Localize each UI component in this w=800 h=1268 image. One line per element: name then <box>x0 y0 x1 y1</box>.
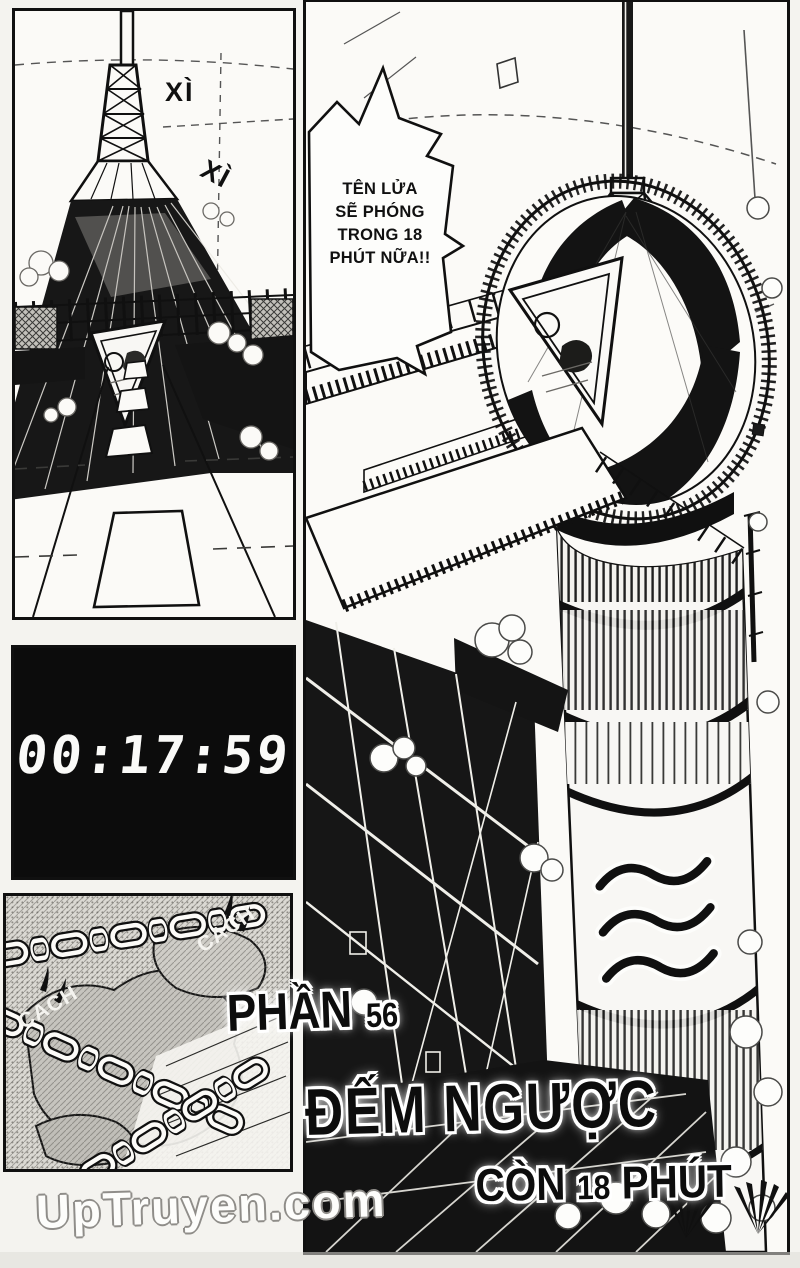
body-markings <box>590 856 724 985</box>
scan-edge-shadow <box>0 1252 800 1268</box>
chapter-main-title: ĐẾM NGƯỢC <box>304 1065 658 1150</box>
service-mast-right <box>744 423 765 662</box>
speech-line-1: TÊN LỬA <box>312 178 448 201</box>
antenna-mast <box>121 11 133 65</box>
sfx-hiss-1: XÌ <box>165 77 195 108</box>
tower-skirt <box>71 161 177 201</box>
chapter-subtitle-word-2: PHÚT <box>621 1154 732 1210</box>
countdown-digital-clock: 00:17:59 <box>11 726 296 786</box>
launch-tower-drawing <box>15 11 293 617</box>
lattice-tower <box>98 65 148 161</box>
antenna-mast <box>611 2 644 193</box>
panel-launch-tower: XÌ XÌ <box>12 8 296 620</box>
speech-line-3: TRONG 18 <box>312 224 448 247</box>
speech-bubble-text: TÊN LỬA SẼ PHÓNG TRONG 18 PHÚT NỮA!! <box>312 178 448 270</box>
chapter-subtitle-number: 18 <box>577 1169 611 1211</box>
chapter-subtitle: CÒN 18 PHÚT <box>475 1154 732 1212</box>
chapter-part-label: PHẦN <box>226 980 353 1044</box>
chapter-part-number: 56 <box>365 996 399 1039</box>
speech-line-4: PHÚT NỮA!! <box>312 247 448 270</box>
panel-countdown-clock: 00:17:59 <box>11 645 296 880</box>
speech-line-2: SẼ PHÓNG <box>312 201 448 224</box>
manga-page: XÌ XÌ 00:17:59 <box>0 0 800 1268</box>
chapter-subtitle-word-1: CÒN <box>475 1156 566 1212</box>
chapter-part-title: PHẦN 56 <box>226 978 399 1044</box>
